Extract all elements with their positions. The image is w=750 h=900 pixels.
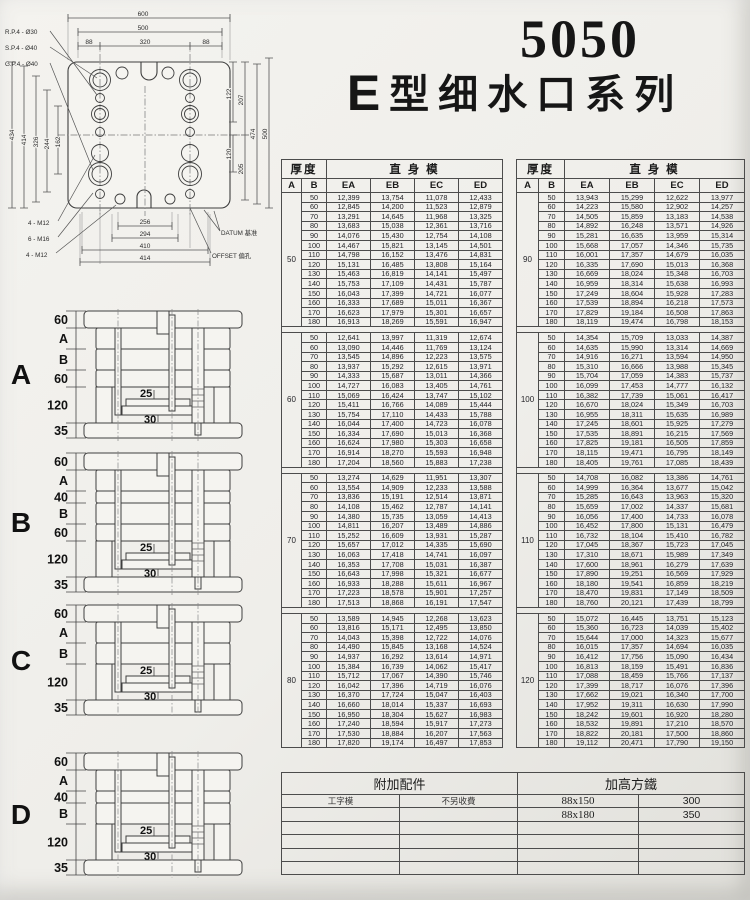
price-value: 14,741 <box>415 550 459 560</box>
price-value: 16,485 <box>371 260 415 270</box>
thickness-b-value: 160 <box>302 298 327 308</box>
thickness-b-value: 150 <box>539 709 565 719</box>
thickness-b-value: 100 <box>302 521 327 531</box>
ejector-retainer-plate <box>126 553 190 560</box>
price-value: 14,679 <box>655 250 700 260</box>
price-value: 16,368 <box>700 260 745 270</box>
price-value: 15,321 <box>415 569 459 579</box>
price-value: 13,589 <box>327 613 371 623</box>
price-header-row2: ABEAEBECED <box>517 179 745 193</box>
price-row: 6014,22315,58012,90214,257 <box>517 202 745 212</box>
price-row: 16017,24018,59415,91717,273 <box>282 719 503 729</box>
price-value: 14,431 <box>415 279 459 289</box>
thickness-b-value: 150 <box>539 288 565 298</box>
price-value: 14,811 <box>327 521 371 531</box>
locating-ring <box>157 453 169 476</box>
price-row: 11015,25216,60913,93115,287 <box>282 531 503 541</box>
price-value: 16,677 <box>459 569 503 579</box>
locating-ring <box>157 605 169 628</box>
price-value: 19,761 <box>610 458 655 468</box>
price-row: 6013,09014,44611,76913,124 <box>282 342 503 352</box>
price-value: 16,412 <box>565 652 610 662</box>
price-value: 12,879 <box>459 202 503 212</box>
price-value: 15,462 <box>371 502 415 512</box>
price-row: 11016,00117,35714,67916,035 <box>517 250 745 260</box>
ejector-dim-25: 25 <box>140 665 152 677</box>
price-value: 14,043 <box>327 633 371 643</box>
col-ec-header: EC <box>415 179 459 193</box>
price-row: 9014,93716,29213,61414,971 <box>282 652 503 662</box>
price-value: 15,402 <box>700 623 745 633</box>
price-value: 16,035 <box>700 642 745 652</box>
price-value: 17,724 <box>371 690 415 700</box>
mold-section-svg: 253060A40B12035 <box>40 748 272 881</box>
price-value: 18,560 <box>371 458 415 468</box>
price-value: 15,310 <box>565 362 610 372</box>
ejector-base-plate <box>122 560 194 569</box>
thickness-b-value: 120 <box>539 681 565 691</box>
clamp-plate <box>84 423 242 438</box>
price-value: 14,669 <box>700 342 745 352</box>
thickness-b-value: 140 <box>539 419 565 429</box>
price-row: 14015,75317,10914,43115,787 <box>282 279 503 289</box>
price-value: 16,218 <box>655 298 700 308</box>
thickness-b-value: 50 <box>539 193 565 203</box>
price-value: 18,367 <box>610 540 655 550</box>
price-value: 17,859 <box>700 438 745 448</box>
dim-600: 600 <box>138 11 149 18</box>
price-value: 14,387 <box>700 333 745 343</box>
price-value: 19,471 <box>610 448 655 458</box>
price-value: 17,273 <box>459 719 503 729</box>
price-value: 15,766 <box>655 671 700 681</box>
price-value: 14,798 <box>327 250 371 260</box>
thickness-a-value: 70 <box>282 473 302 607</box>
price-value: 13,325 <box>459 212 503 222</box>
price-value: 16,078 <box>700 512 745 522</box>
price-value: 14,490 <box>327 642 371 652</box>
thickness-b-value: 70 <box>302 212 327 222</box>
price-row: 17018,82220,18117,50018,860 <box>517 729 745 739</box>
price-row: 10014,81116,20713,48914,886 <box>282 521 503 531</box>
dim-120: 120 <box>226 148 233 159</box>
price-row: 18018,40519,76117,08518,439 <box>517 458 745 468</box>
thickness-b-value: 180 <box>302 458 327 468</box>
price-value: 17,396 <box>700 681 745 691</box>
thickness-b-value: 140 <box>302 700 327 710</box>
price-value: 13,937 <box>327 362 371 372</box>
label-rp: R.P.4 - Ø30 <box>5 29 38 36</box>
price-row: 10016,81318,15915,49116,836 <box>517 661 745 671</box>
section-letter: C <box>2 645 40 677</box>
dim-410: 410 <box>140 243 151 250</box>
price-value: 15,712 <box>327 671 371 681</box>
dim-326: 326 <box>33 136 40 147</box>
band-dim-label: 35 <box>54 578 68 592</box>
label-4m12-top: 4 - M12 <box>28 220 50 227</box>
price-value: 16,424 <box>371 390 415 400</box>
price-value: 14,635 <box>565 342 610 352</box>
price-value: 18,269 <box>371 317 415 327</box>
ejector-base-plate <box>122 683 194 692</box>
price-value: 12,223 <box>415 352 459 362</box>
price-value: 14,708 <box>565 473 610 483</box>
clamp-plate <box>84 577 242 592</box>
price-value: 17,045 <box>565 540 610 550</box>
thickness-b-value: 160 <box>539 579 565 589</box>
price-value: 11,968 <box>415 212 459 222</box>
price-value: 14,076 <box>459 633 503 643</box>
price-value: 16,569 <box>655 569 700 579</box>
price-row: 7013,29114,64511,96813,325 <box>282 212 503 222</box>
price-row: 6015,36016,72314,03915,402 <box>517 623 745 633</box>
thickness-b-value: 70 <box>302 492 327 502</box>
riser-price: 350 <box>639 808 745 821</box>
price-value: 16,666 <box>610 362 655 372</box>
price-value: 16,967 <box>459 579 503 589</box>
price-value: 11,523 <box>415 202 459 212</box>
price-value: 12,902 <box>655 202 700 212</box>
price-value: 15,444 <box>459 400 503 410</box>
price-value: 19,311 <box>610 700 655 710</box>
thickness-header: 厚度 <box>517 160 565 179</box>
price-table-left: 厚度直 身 模ABEAEBECED505012,39913,75411,0781… <box>281 159 503 748</box>
price-value: 15,709 <box>610 333 655 343</box>
price-value: 16,207 <box>371 521 415 531</box>
price-row: 15017,89019,25116,56917,929 <box>517 569 745 579</box>
price-value: 16,335 <box>565 260 610 270</box>
thickness-b-value: 150 <box>302 288 327 298</box>
label-datum: DATUM 基准 <box>221 228 257 237</box>
thickness-b-value: 160 <box>302 719 327 729</box>
section-diagram-c: C253060AB12035 <box>2 600 272 721</box>
price-value: 13,816 <box>327 623 371 633</box>
price-value: 17,690 <box>371 429 415 439</box>
thickness-b-value: 130 <box>302 410 327 420</box>
thickness-b-value: 70 <box>302 633 327 643</box>
price-value: 14,831 <box>459 250 503 260</box>
price-value: 14,108 <box>459 231 503 241</box>
page-title-series: E型细水口系列 <box>285 62 745 122</box>
price-value: 19,021 <box>610 690 655 700</box>
price-value: 15,171 <box>371 623 415 633</box>
thickness-b-value: 140 <box>539 700 565 710</box>
price-value: 17,002 <box>610 502 655 512</box>
price-value: 15,303 <box>415 438 459 448</box>
price-value: 17,223 <box>327 588 371 598</box>
price-row: 12015,41116,76614,08915,444 <box>282 400 503 410</box>
price-value: 16,643 <box>610 492 655 502</box>
section-letter: A <box>2 359 40 391</box>
thickness-b-value: 170 <box>539 588 565 598</box>
price-value: 16,643 <box>327 569 371 579</box>
price-value: 14,337 <box>655 502 700 512</box>
locating-ring <box>157 753 169 776</box>
price-value: 14,433 <box>415 410 459 420</box>
thickness-b-value: 60 <box>302 202 327 212</box>
price-value: 14,323 <box>655 633 700 643</box>
price-value: 17,547 <box>459 598 503 608</box>
price-value: 13,291 <box>327 212 371 222</box>
dim-294: 294 <box>140 231 151 238</box>
price-value: 13,588 <box>459 483 503 493</box>
price-value: 13,554 <box>327 483 371 493</box>
price-value: 15,337 <box>415 700 459 710</box>
price-value: 18,314 <box>610 279 655 289</box>
price-value: 15,287 <box>459 531 503 541</box>
thickness-b-value: 160 <box>302 579 327 589</box>
price-value: 15,285 <box>565 492 610 502</box>
price-header-row2: ABEAEBECED <box>282 179 503 193</box>
price-value: 15,345 <box>700 362 745 372</box>
clamp-plate <box>84 700 242 715</box>
thickness-b-value: 130 <box>539 269 565 279</box>
price-value: 16,983 <box>459 709 503 719</box>
price-value: 12,845 <box>327 202 371 212</box>
price-value: 16,445 <box>610 613 655 623</box>
spacer-block <box>96 664 112 700</box>
price-value: 18,891 <box>610 429 655 439</box>
price-value: 14,383 <box>655 371 700 381</box>
label-6m16: 6 - M16 <box>28 236 50 243</box>
price-row: 8013,93715,29212,61513,971 <box>282 362 503 372</box>
price-value: 14,945 <box>371 613 415 623</box>
price-value: 18,280 <box>700 709 745 719</box>
price-row: 16018,53219,89117,21018,570 <box>517 719 745 729</box>
price-row: 17017,82919,18416,50817,863 <box>517 308 745 318</box>
price-value: 15,690 <box>459 540 503 550</box>
price-header-row1: 厚度直 身 模 <box>517 160 745 179</box>
price-value: 15,292 <box>371 362 415 372</box>
price-value: 16,368 <box>459 429 503 439</box>
price-value: 13,754 <box>371 193 415 203</box>
thickness-b-value: 50 <box>302 193 327 203</box>
price-row: 10014,72716,08313,40514,761 <box>282 381 503 391</box>
price-value: 16,434 <box>700 652 745 662</box>
thickness-a-value: 80 <box>282 613 302 747</box>
thickness-b-value: 90 <box>302 231 327 241</box>
price-value: 13,683 <box>327 221 371 231</box>
riser-size: 88x150 <box>518 795 639 808</box>
price-value: 13,997 <box>371 333 415 343</box>
price-value: 18,288 <box>371 579 415 589</box>
price-row: 6012,84514,20011,52312,879 <box>282 202 503 212</box>
price-value: 14,892 <box>565 221 610 231</box>
price-value: 13,124 <box>459 342 503 352</box>
price-value: 16,813 <box>565 661 610 671</box>
price-value: 14,039 <box>655 623 700 633</box>
price-value: 13,871 <box>459 492 503 502</box>
thickness-a-value: 60 <box>282 333 302 467</box>
ejector-dim-25: 25 <box>140 542 152 554</box>
price-value: 14,886 <box>459 521 503 531</box>
thickness-b-value: 130 <box>302 269 327 279</box>
col-a-header: A <box>517 179 539 193</box>
band-dim-label: A <box>59 626 68 640</box>
price-value: 18,149 <box>700 448 745 458</box>
price-value: 15,735 <box>700 240 745 250</box>
thickness-b-value: 80 <box>539 362 565 372</box>
price-value: 14,896 <box>371 352 415 362</box>
mold-plate-drawing-svg: 600 500 88 320 88 434 414 326 244 162 12… <box>0 2 278 276</box>
ejector-retainer-plate <box>126 399 190 406</box>
col-b-header: B <box>302 179 327 193</box>
price-value: 15,398 <box>371 633 415 643</box>
price-value: 18,180 <box>565 579 610 589</box>
price-value: 16,669 <box>565 269 610 279</box>
price-value: 14,694 <box>655 642 700 652</box>
price-value: 12,615 <box>415 362 459 372</box>
price-row: 9015,70417,05914,38315,737 <box>517 371 745 381</box>
band-dim-label: 120 <box>47 836 68 850</box>
price-value: 15,463 <box>327 269 371 279</box>
thickness-b-value: 70 <box>302 352 327 362</box>
thickness-b-value: 80 <box>302 642 327 652</box>
series-text: 型细水口系列 <box>389 73 683 117</box>
price-row: 14016,95918,31415,63816,993 <box>517 279 745 289</box>
price-value: 17,639 <box>700 559 745 569</box>
price-value: 15,061 <box>655 390 700 400</box>
price-value: 17,979 <box>371 308 415 318</box>
thickness-b-value: 80 <box>539 221 565 231</box>
price-value: 18,760 <box>565 598 610 608</box>
price-value: 17,057 <box>610 240 655 250</box>
price-value: 16,364 <box>610 483 655 493</box>
price-value: 17,400 <box>610 512 655 522</box>
price-value: 14,390 <box>415 671 459 681</box>
price-value: 13,011 <box>415 371 459 381</box>
band-dim-label: 35 <box>54 424 68 438</box>
thickness-b-value: 130 <box>539 550 565 560</box>
price-value: 15,349 <box>655 400 700 410</box>
price-value: 14,413 <box>459 512 503 522</box>
price-value: 13,274 <box>327 473 371 483</box>
price-row: 10016,09917,45314,77716,132 <box>517 381 745 391</box>
price-value: 13,571 <box>655 221 700 231</box>
price-value: 14,733 <box>655 512 700 522</box>
price-value: 13,988 <box>655 362 700 372</box>
price-row: 16016,93318,28815,61116,967 <box>282 579 503 589</box>
price-row: 13016,37017,72415,04716,403 <box>282 690 503 700</box>
band-dim-label: A <box>59 774 68 788</box>
col-ec-header: EC <box>655 179 700 193</box>
thickness-b-value: 110 <box>302 390 327 400</box>
price-value: 16,624 <box>327 438 371 448</box>
band-dim-label: B <box>59 507 68 521</box>
price-value: 12,722 <box>415 633 459 643</box>
price-row: 11017,08818,45915,76617,137 <box>517 671 745 681</box>
price-value: 14,909 <box>371 483 415 493</box>
price-value: 13,183 <box>655 212 700 222</box>
straight-mold-header: 直 身 模 <box>565 160 745 179</box>
thickness-b-value: 140 <box>539 559 565 569</box>
thickness-b-value: 110 <box>302 250 327 260</box>
price-value: 13,594 <box>655 352 700 362</box>
thickness-b-value: 50 <box>302 473 327 483</box>
price-value: 17,400 <box>371 419 415 429</box>
price-value: 13,677 <box>655 483 700 493</box>
price-value: 17,399 <box>565 681 610 691</box>
price-value: 15,925 <box>655 419 700 429</box>
price-value: 13,545 <box>327 352 371 362</box>
price-value: 17,059 <box>610 371 655 381</box>
dim-162: 162 <box>55 136 62 147</box>
price-row: 14017,95219,31116,63017,990 <box>517 700 745 710</box>
price-value: 15,047 <box>415 690 459 700</box>
dim-88-left: 88 <box>85 39 93 46</box>
price-value: 14,777 <box>655 381 700 391</box>
price-row: 17018,11519,47116,79518,149 <box>517 448 745 458</box>
thickness-b-value: 50 <box>539 333 565 343</box>
thickness-b-value: 160 <box>302 438 327 448</box>
col-b-header: B <box>539 179 565 193</box>
price-value: 17,257 <box>459 588 503 598</box>
price-value: 18,470 <box>565 588 610 598</box>
price-value: 17,689 <box>371 298 415 308</box>
price-value: 18,671 <box>610 550 655 560</box>
price-value: 14,200 <box>371 202 415 212</box>
price-row: 15016,04317,39914,72116,077 <box>282 288 503 298</box>
price-value: 12,268 <box>415 613 459 623</box>
price-value: 20,471 <box>610 738 655 748</box>
accessories-row: 工字模不另收費88x150300 <box>282 795 745 808</box>
price-value: 16,703 <box>700 269 745 279</box>
price-row: 16017,53918,89416,21817,573 <box>517 298 745 308</box>
price-row: 9016,05617,40014,73316,078 <box>517 512 745 522</box>
price-value: 17,399 <box>371 288 415 298</box>
price-value: 15,497 <box>459 269 503 279</box>
band-dim-label: 60 <box>54 455 68 469</box>
price-row: 13016,06317,41814,74116,097 <box>282 550 503 560</box>
thickness-b-value: 180 <box>539 317 565 327</box>
price-value: 13,145 <box>415 240 459 250</box>
straight-mold-header: 直 身 模 <box>327 160 503 179</box>
price-value: 17,149 <box>655 588 700 598</box>
price-value: 18,578 <box>371 588 415 598</box>
price-value: 17,439 <box>655 598 700 608</box>
guide-pin <box>115 470 121 569</box>
price-value: 16,635 <box>610 231 655 241</box>
price-value: 14,257 <box>700 202 745 212</box>
spacer-block <box>214 824 230 860</box>
price-value: 12,233 <box>415 483 459 493</box>
dim-88-right: 88 <box>202 39 210 46</box>
price-value: 18,159 <box>610 661 655 671</box>
price-row: 8013,68315,03812,36113,716 <box>282 221 503 231</box>
price-value: 17,357 <box>610 250 655 260</box>
thickness-b-value: 170 <box>302 588 327 598</box>
price-value: 12,622 <box>655 193 700 203</box>
price-row: 7015,64417,00014,32315,677 <box>517 633 745 643</box>
price-value: 16,076 <box>459 681 503 691</box>
price-value: 17,349 <box>700 550 745 560</box>
price-row: 14016,04417,40014,72316,078 <box>282 419 503 429</box>
price-value: 18,024 <box>610 269 655 279</box>
label-4m12-bottom: 4 - M12 <box>26 252 48 259</box>
price-value: 15,990 <box>610 342 655 352</box>
thickness-b-value: 120 <box>539 400 565 410</box>
thickness-b-value: 60 <box>539 342 565 352</box>
thickness-b-value: 110 <box>302 671 327 681</box>
price-value: 12,754 <box>415 231 459 241</box>
thickness-b-value: 110 <box>539 531 565 541</box>
price-row: 12017,39918,71716,07617,396 <box>517 681 745 691</box>
price-value: 19,184 <box>610 308 655 318</box>
price-value: 15,102 <box>459 390 503 400</box>
price-value: 13,931 <box>415 531 459 541</box>
thickness-b-value: 130 <box>539 410 565 420</box>
price-row: 13017,66219,02116,34017,700 <box>517 690 745 700</box>
